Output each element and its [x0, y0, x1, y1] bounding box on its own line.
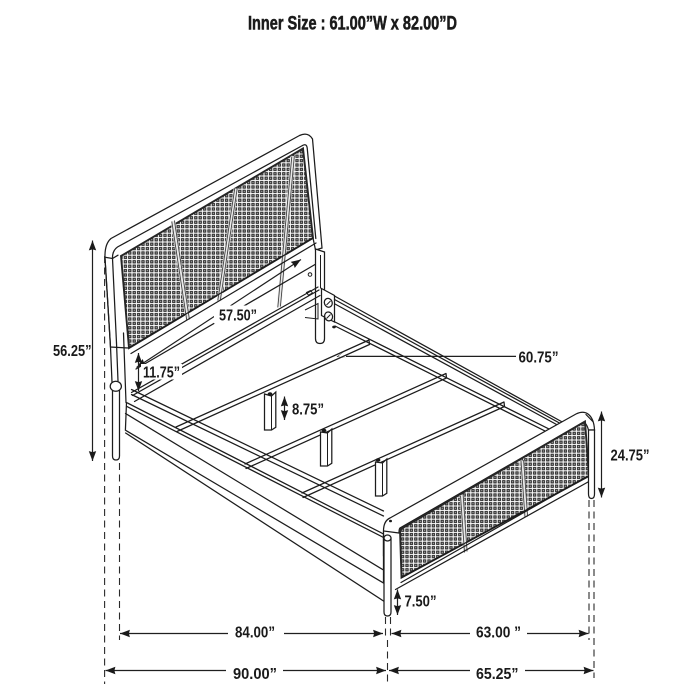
svg-text:7.50”: 7.50”	[405, 594, 437, 611]
svg-text:Inner Size : 61.00”W x 82.00”D: Inner Size : 61.00”W x 82.00”D	[248, 14, 457, 35]
svg-text:84.00”: 84.00”	[235, 625, 275, 642]
svg-text:63.00 ”: 63.00 ”	[476, 625, 521, 642]
svg-text:24.75”: 24.75”	[611, 448, 650, 465]
svg-text:65.25”: 65.25”	[476, 666, 519, 683]
svg-text:57.50”: 57.50”	[219, 308, 257, 325]
svg-text:60.75”: 60.75”	[519, 350, 559, 367]
svg-text:90.00”: 90.00”	[233, 666, 277, 683]
svg-text:56.25”: 56.25”	[53, 343, 92, 360]
svg-text:11.75”: 11.75”	[143, 365, 180, 382]
svg-text:8.75”: 8.75”	[292, 402, 324, 419]
